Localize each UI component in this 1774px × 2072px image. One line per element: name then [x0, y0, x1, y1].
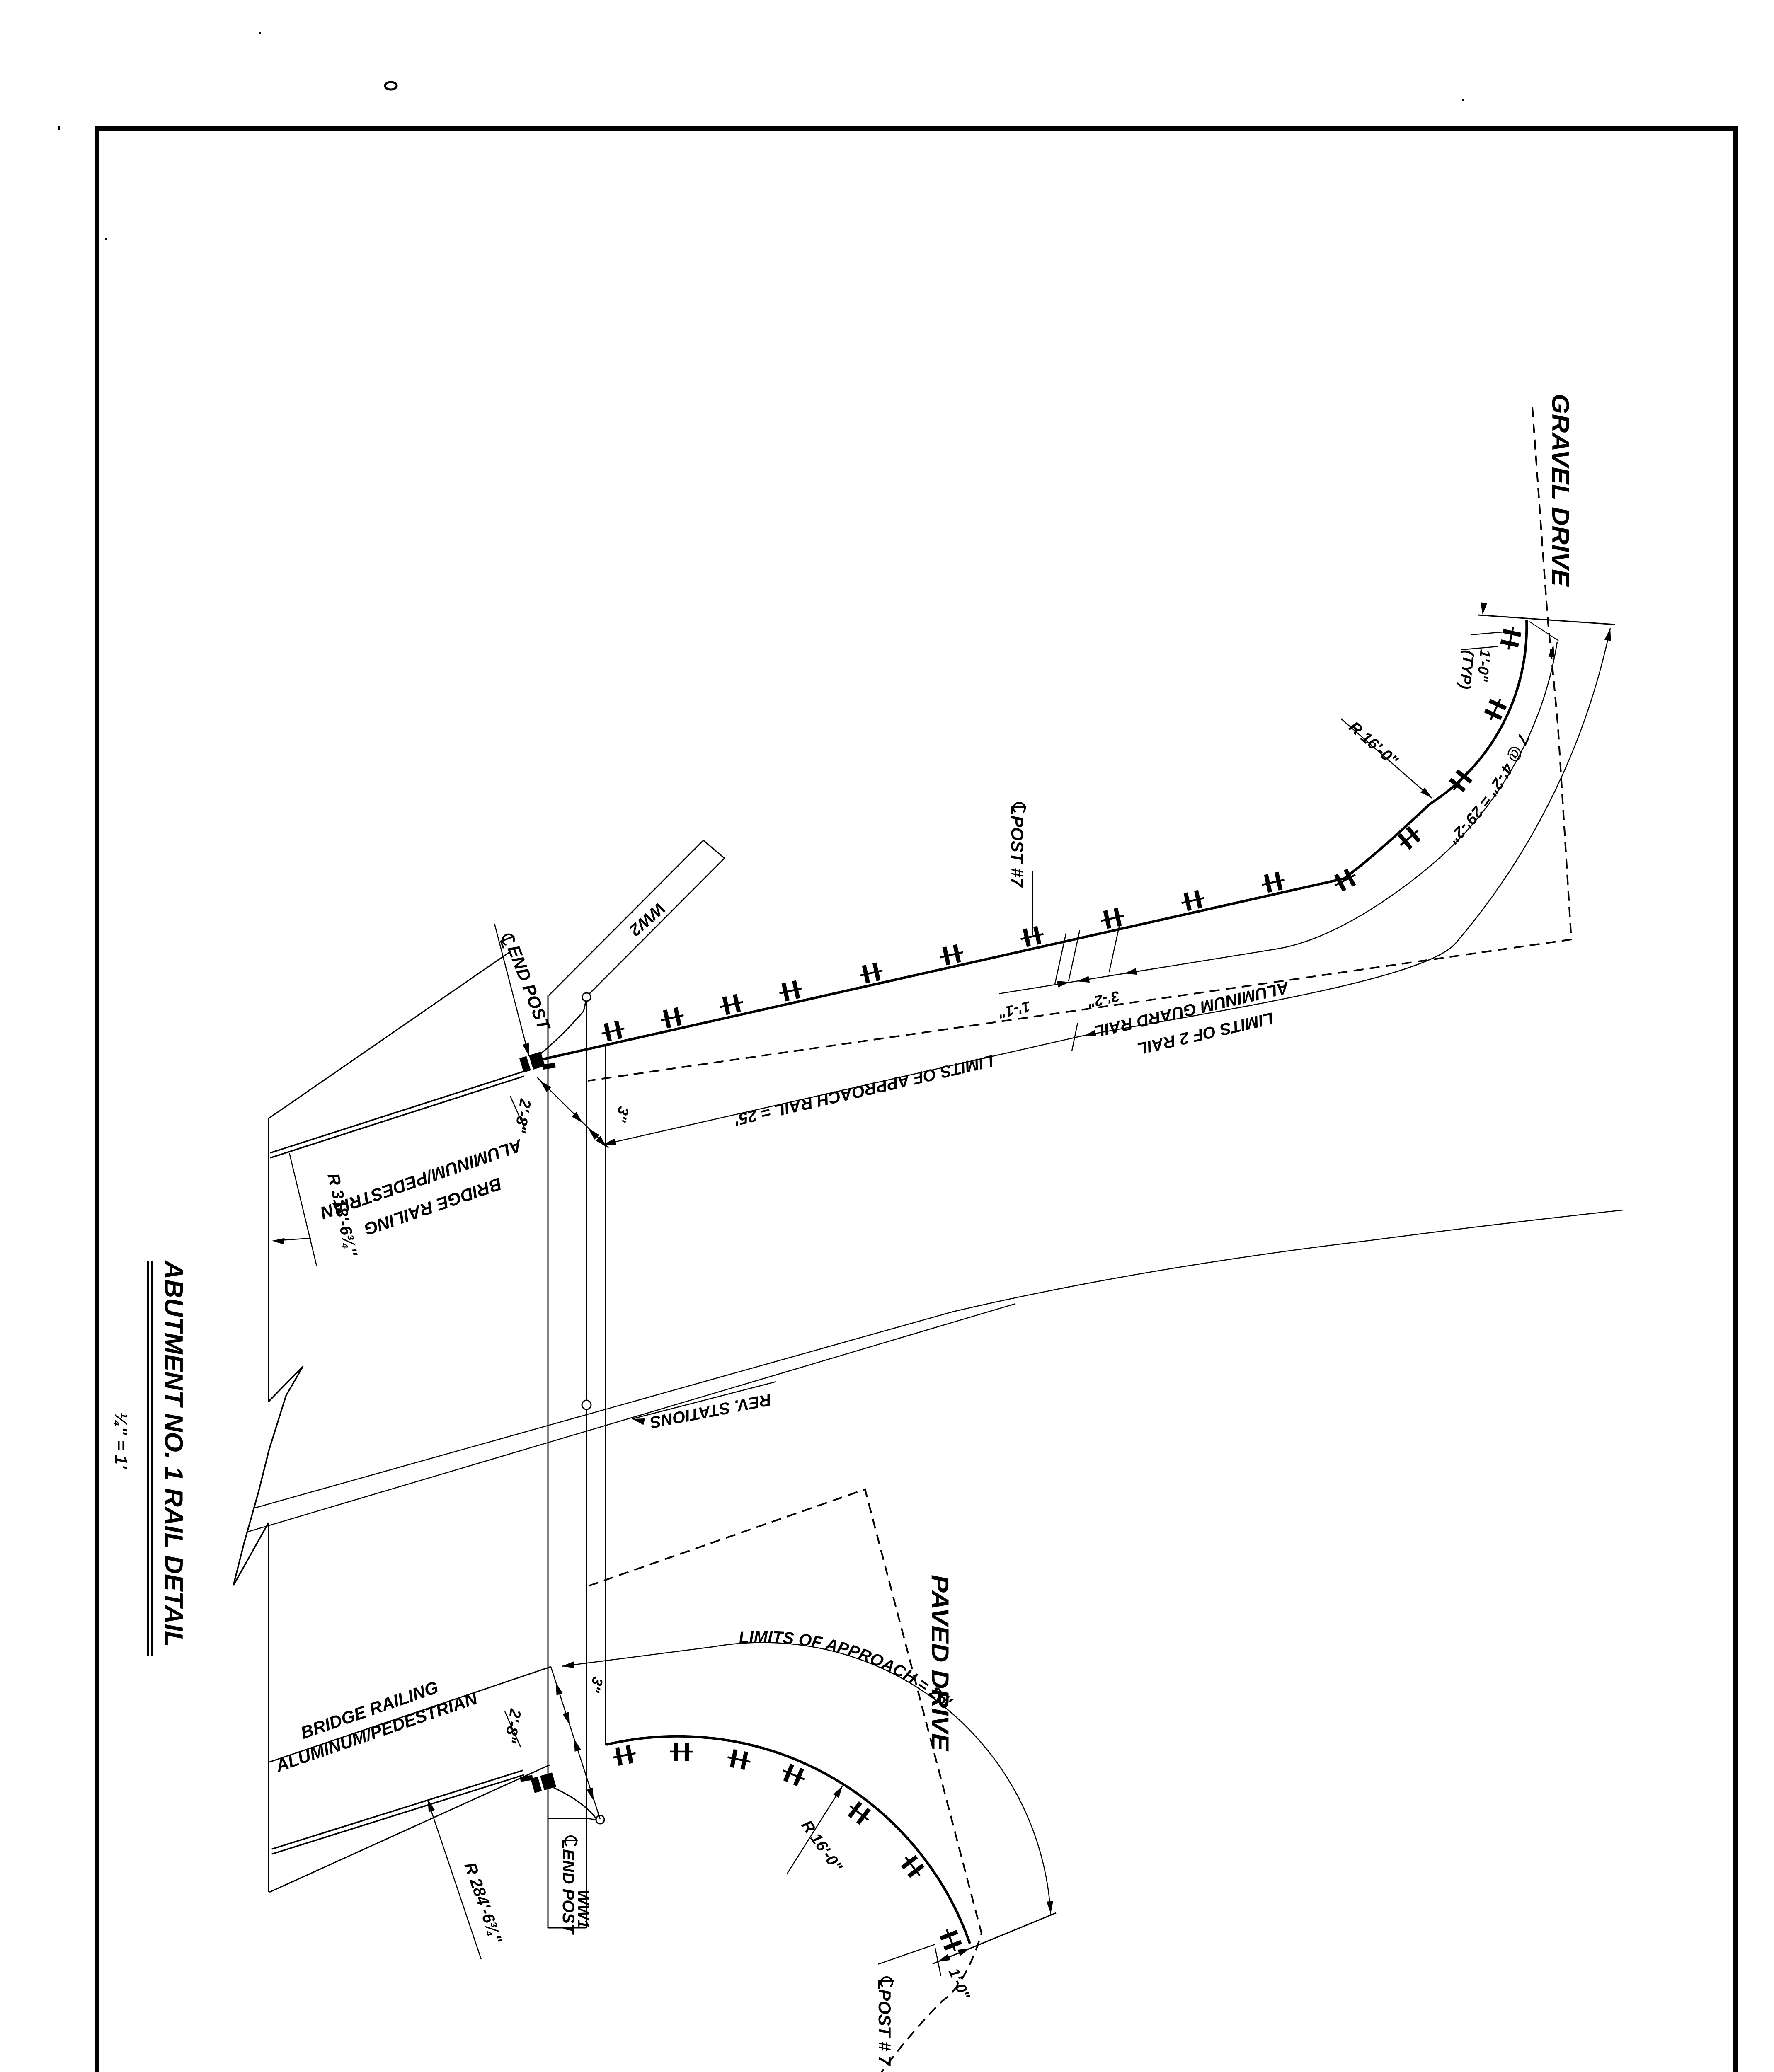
svg-text:POST # 7: POST # 7: [875, 1989, 894, 2066]
svg-text:WW1: WW1: [574, 1890, 591, 1928]
svg-text:ABUTMENT NO. 1 RAIL DETAIL: ABUTMENT NO. 1 RAIL DETAIL: [159, 1260, 188, 1647]
svg-text:GRAVEL DRIVE: GRAVEL DRIVE: [1547, 394, 1574, 587]
svg-text:POST #7: POST #7: [1008, 816, 1027, 888]
svg-text:¼" = 1': ¼" = 1': [111, 1412, 131, 1469]
svg-text:PAVED DRIVE: PAVED DRIVE: [926, 1575, 953, 1752]
